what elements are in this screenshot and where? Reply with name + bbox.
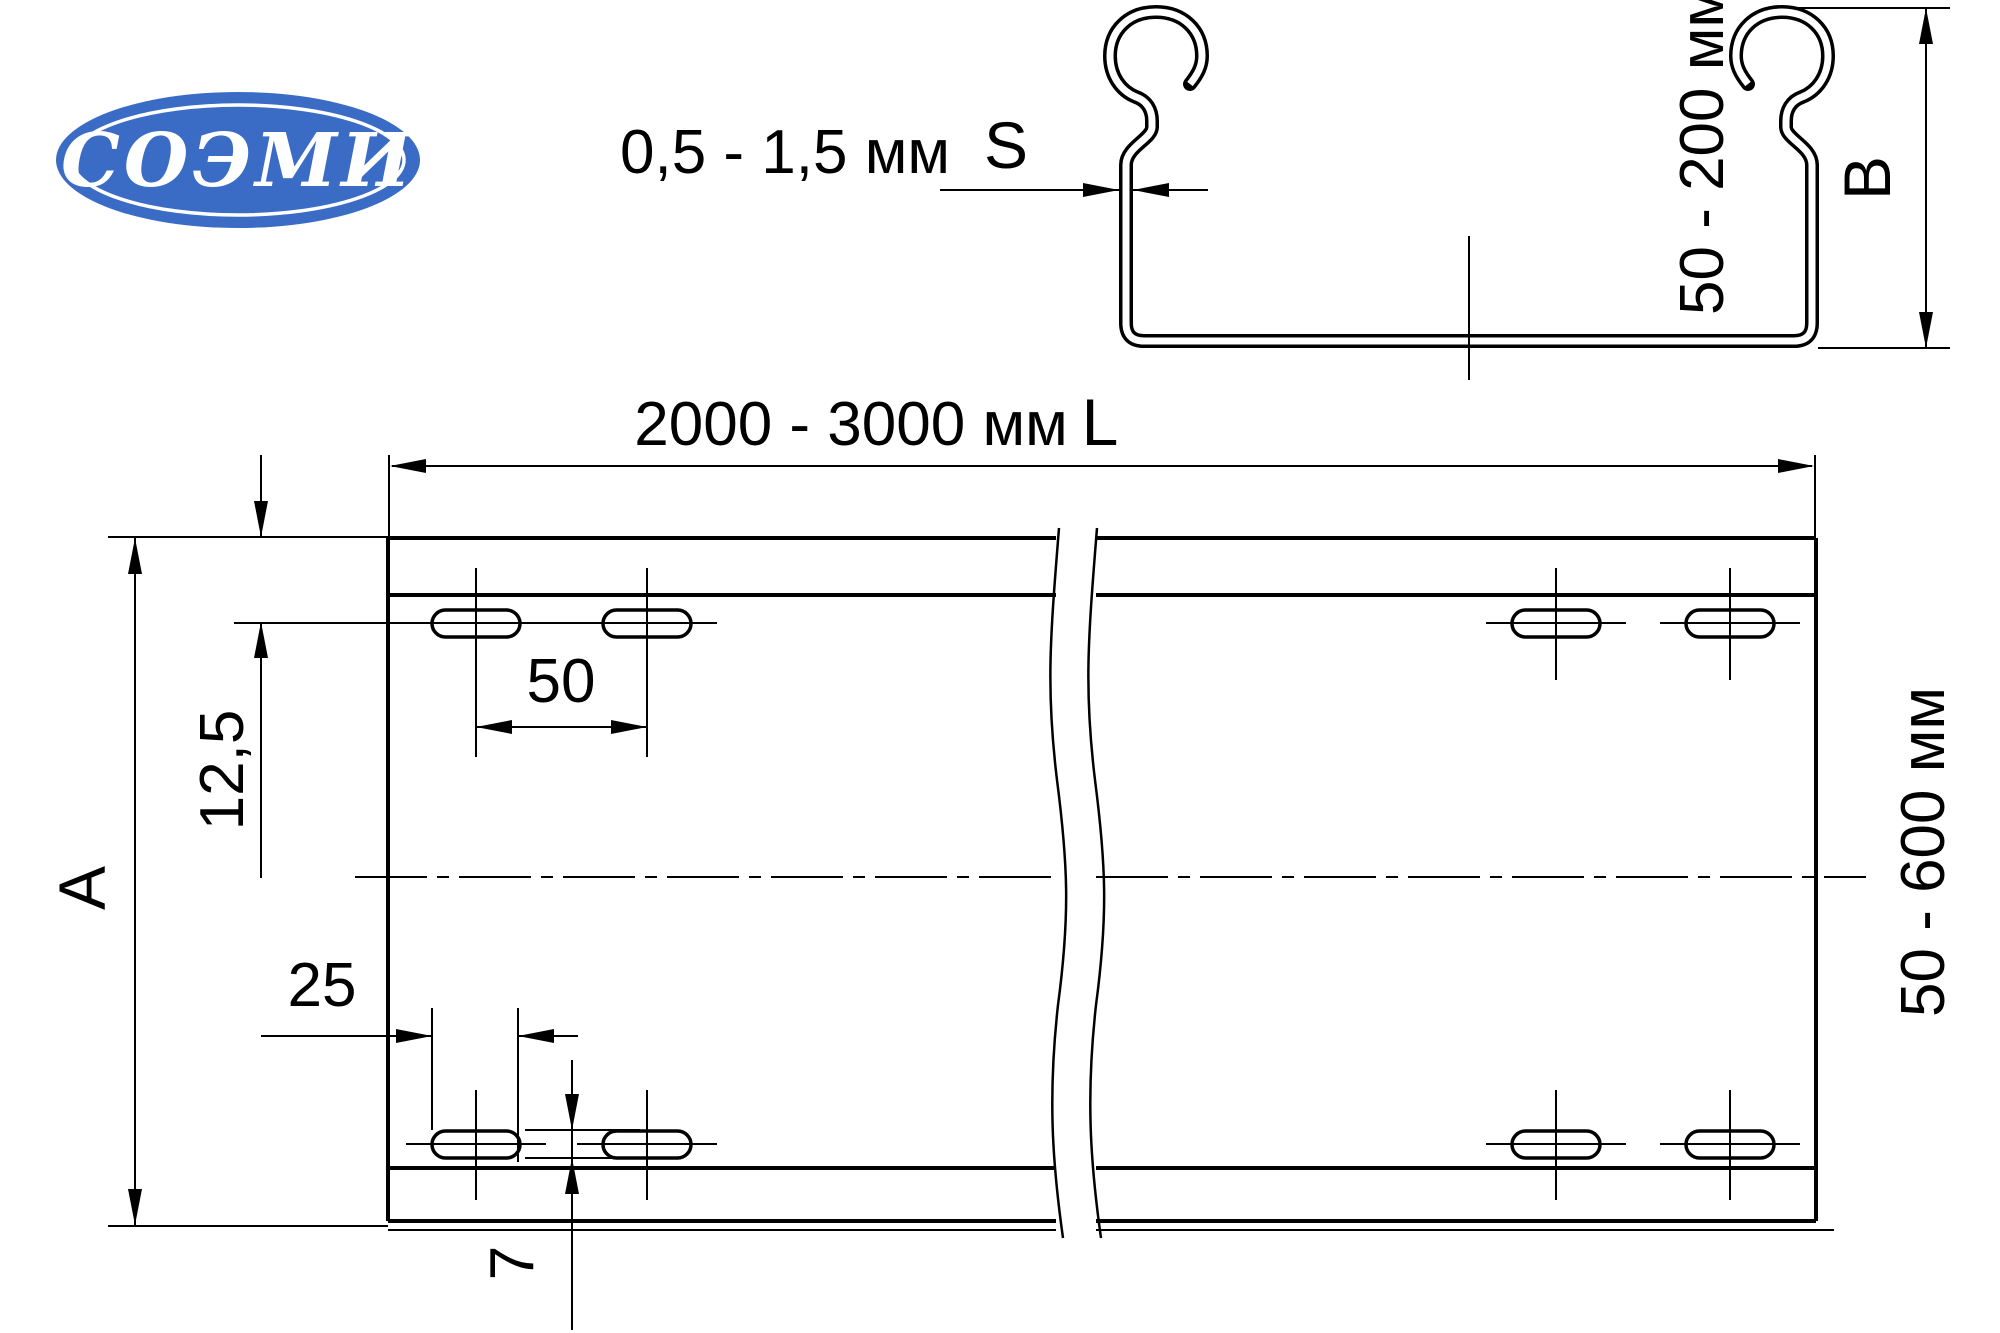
logo: СОЭМИ	[56, 92, 420, 228]
thickness-value: 0,5 - 1,5 мм	[620, 118, 950, 187]
hole-length-value: 25	[288, 951, 357, 1020]
plan-view: 2000 - 3000 мм L A 50 - 600 мм 12,5	[45, 385, 1958, 1330]
section-view: 0,5 - 1,5 мм S 50 - 200 мм B	[620, 0, 1950, 380]
arrowhead-left-icon	[390, 459, 426, 473]
arrowhead-down-icon	[565, 1094, 579, 1130]
section-height-symbol: B	[1830, 156, 1904, 200]
hole-spacing-value: 50	[527, 647, 596, 716]
edge-to-holes-value: 12,5	[188, 710, 257, 831]
arrowhead-up-icon	[128, 538, 142, 574]
length-symbol: L	[1082, 385, 1119, 459]
slot-holes-bottom-row	[406, 1090, 1800, 1200]
technical-drawing-page: СОЭМИ 0,5 - 1,5 мм S 50 - 200 мм B	[0, 0, 2000, 1333]
drawing-canvas: СОЭМИ 0,5 - 1,5 мм S 50 - 200 мм B	[0, 0, 2000, 1333]
width-range: 50 - 600 мм	[1889, 687, 1958, 1017]
dim-hole-width: 7	[478, 1060, 640, 1330]
thickness-symbol: S	[984, 108, 1028, 182]
logo-text: СОЭМИ	[61, 118, 415, 204]
arrowhead-left-icon	[518, 1029, 554, 1043]
arrowhead-right-icon	[611, 720, 647, 734]
arrowhead-down-icon	[128, 1189, 142, 1225]
length-range: 2000 - 3000 мм	[634, 390, 1067, 459]
dim-width-a: A	[45, 537, 388, 1226]
arrowhead-up-icon	[565, 1158, 579, 1194]
arrowhead-right-icon	[1778, 459, 1814, 473]
arrowhead-right-icon	[396, 1029, 432, 1043]
dim-length: 2000 - 3000 мм L	[389, 385, 1815, 538]
arrowhead-left-icon	[1133, 183, 1169, 197]
dim-hole-spacing: 50	[476, 647, 647, 734]
hole-width-value: 7	[478, 1246, 547, 1280]
arrowhead-left-icon	[476, 720, 512, 734]
arrowhead-down-icon	[254, 501, 268, 537]
section-height-range: 50 - 200 мм	[1668, 0, 1737, 315]
arrowhead-right-icon	[1083, 183, 1119, 197]
break-line-left	[1050, 528, 1066, 1238]
arrowhead-down-icon	[1919, 312, 1933, 348]
break-line-right	[1088, 528, 1104, 1238]
width-symbol: A	[45, 866, 119, 910]
arrowhead-up-icon	[1919, 8, 1933, 44]
dim-edge-to-holes: 12,5	[188, 455, 268, 878]
arrowhead-up-icon	[254, 622, 268, 658]
